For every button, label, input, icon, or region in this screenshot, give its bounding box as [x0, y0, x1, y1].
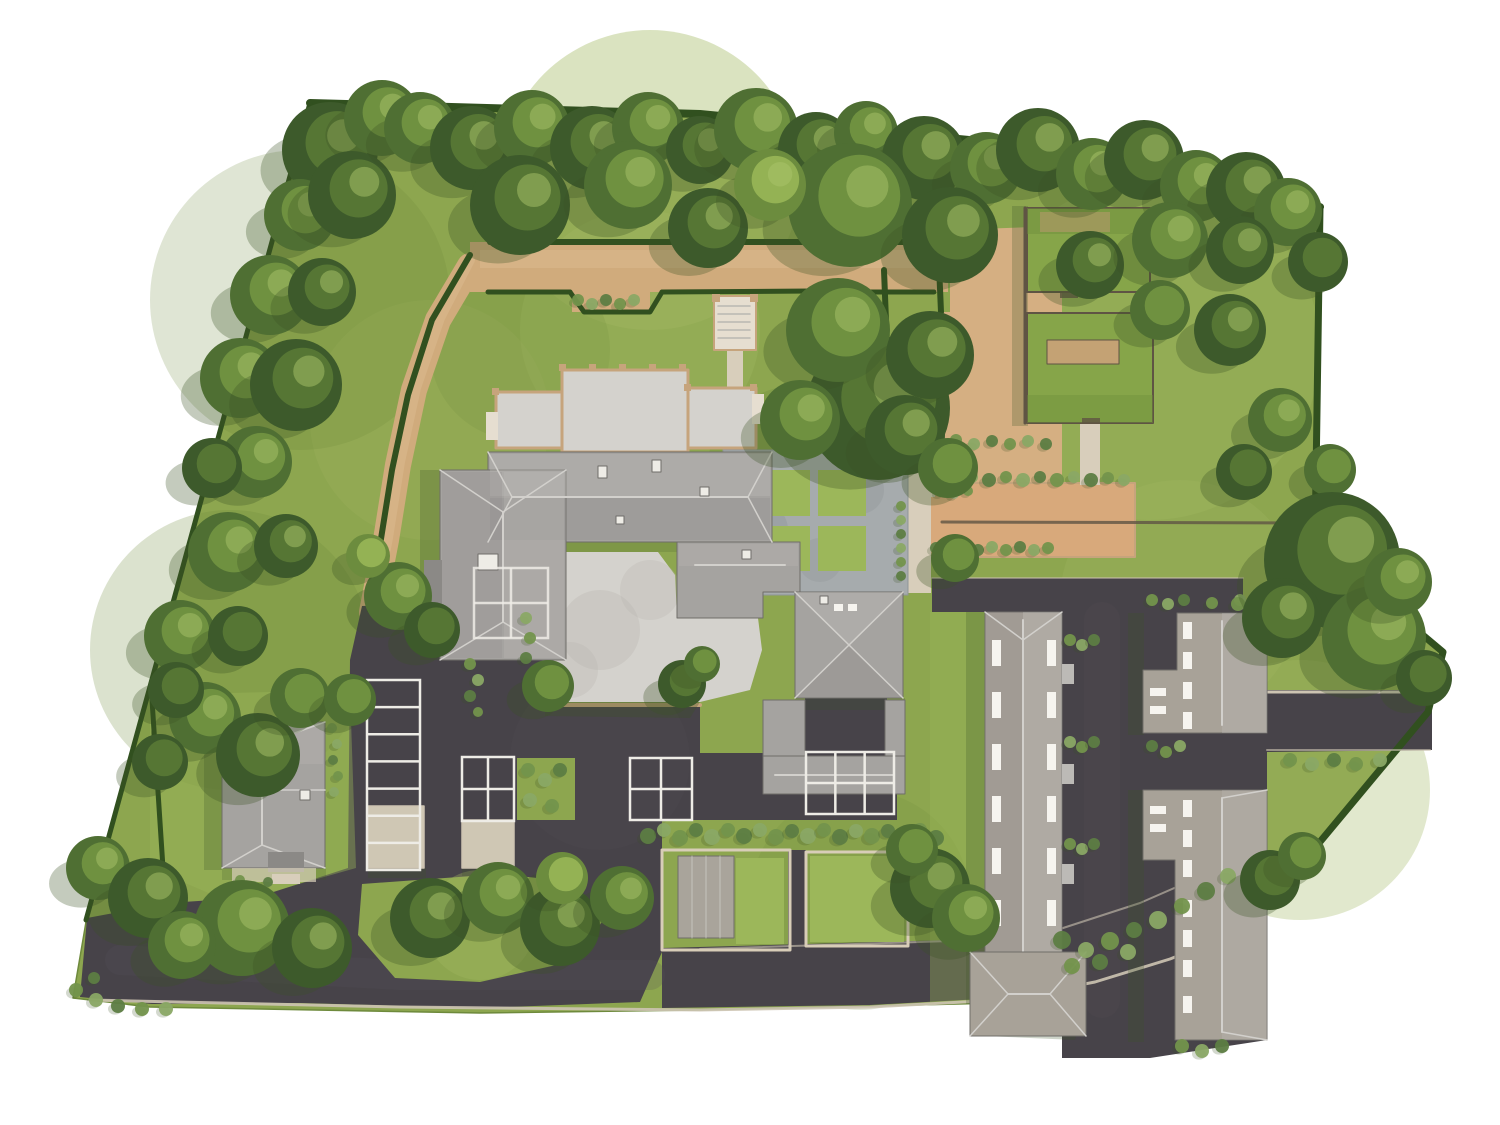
gravel-terraces-shape [679, 364, 686, 371]
shrub-canopy [328, 755, 338, 765]
shrub-canopy [545, 799, 559, 813]
rooflight [848, 604, 857, 611]
gravel-terraces-shape [620, 560, 680, 620]
shrub-canopy [1215, 1039, 1229, 1053]
tree-canopy-light [1290, 837, 1322, 869]
shrub-canopy [1042, 542, 1054, 554]
shrub-canopy [1088, 838, 1100, 850]
rooflight [1183, 800, 1192, 817]
manor-house-shape [504, 472, 564, 658]
gravel-terraces-shape [559, 364, 566, 371]
building-shadows-shape [1128, 790, 1144, 1042]
tree-highlight [798, 394, 825, 421]
shrub-canopy [1092, 954, 1108, 970]
tree-highlight [180, 923, 203, 946]
shrub-canopy [1016, 473, 1030, 487]
tree-canopy-light [418, 607, 455, 644]
tree-canopy-light [899, 829, 933, 863]
shrub-canopy [1146, 594, 1158, 606]
lawn-steps [714, 296, 756, 350]
rooflight [1183, 622, 1192, 639]
shrub-canopy [1118, 474, 1130, 486]
shrub-canopy [521, 763, 535, 777]
shrub-canopy [982, 473, 996, 487]
tree-highlight [310, 922, 337, 949]
north-terrace-west [496, 392, 562, 448]
shrub-canopy [1014, 541, 1026, 553]
shrub-canopy [1101, 932, 1119, 950]
parterre-lawn-se [818, 526, 866, 571]
shrub-canopy [640, 828, 656, 844]
rooflight [1183, 712, 1192, 729]
shrub-canopy [1206, 597, 1218, 609]
hedges-walls-shape [662, 291, 812, 292]
tree-highlight [1396, 560, 1419, 583]
shrub-canopy [1178, 594, 1190, 606]
shrub-canopy [572, 294, 584, 306]
tree-highlight [96, 848, 118, 870]
tree-highlight [293, 356, 324, 387]
tree-highlight [284, 526, 306, 548]
tree-highlight [396, 574, 419, 597]
shrub-canopy [1088, 634, 1100, 646]
tree-canopy-light [357, 538, 386, 567]
shrub-canopy [721, 823, 735, 837]
shrub-canopy [520, 652, 532, 664]
shrub-canopy [111, 999, 125, 1013]
tree-highlight [1328, 516, 1374, 562]
shrub-canopy [538, 773, 552, 787]
shrub-canopy [1174, 740, 1186, 752]
chimney [652, 460, 661, 472]
mews-buildings-shape [1062, 764, 1074, 784]
rooflight [1150, 688, 1166, 696]
tree-canopy-light [162, 667, 199, 704]
tree-canopy-light [933, 444, 973, 484]
shrub-canopy [1078, 942, 1094, 958]
shrub-canopy [896, 529, 906, 539]
shrub-canopy [1040, 438, 1052, 450]
shrub-canopy [464, 690, 476, 702]
tree-canopy-light [1145, 286, 1185, 326]
tree-highlight [921, 131, 950, 160]
tree-highlight [768, 162, 792, 186]
stone-paths-shape [712, 294, 720, 302]
tree-highlight [1278, 400, 1300, 422]
shrub-canopy [768, 829, 784, 845]
building-shadows-shape [1128, 613, 1144, 735]
shrub-canopy [1162, 598, 1174, 610]
shrub-canopy [1000, 544, 1012, 556]
carport-east [462, 820, 514, 868]
tree-highlight [1238, 228, 1261, 251]
shrub-canopy [704, 829, 720, 845]
shrub-canopy [553, 763, 567, 777]
gravel-terraces-shape [684, 384, 691, 391]
shrub-canopy [332, 739, 342, 749]
shrub-canopy [657, 823, 671, 837]
shrub-canopy [329, 787, 339, 797]
tree-highlight [1142, 134, 1169, 161]
shrub-canopy [785, 824, 799, 838]
shrub-canopy [1373, 753, 1387, 767]
chimney [598, 466, 607, 478]
rooflight [1047, 640, 1056, 666]
rooflight [992, 640, 1001, 666]
site-plan [0, 0, 1500, 1125]
gravel-terraces-shape [750, 384, 757, 391]
tree-highlight [835, 297, 870, 332]
manor-house-shape [679, 544, 798, 566]
shrub-canopy [1053, 931, 1071, 949]
shrub-canopy [1126, 922, 1142, 938]
shrub-canopy [1064, 958, 1080, 974]
tree-highlight [146, 872, 173, 899]
site-plan-svg [0, 0, 1500, 1125]
rooflight [992, 796, 1001, 822]
chimney [616, 516, 624, 524]
shrub-canopy [524, 632, 536, 644]
shrub-canopy [1149, 911, 1167, 929]
tree-highlight [496, 875, 520, 899]
shrub-canopy [986, 435, 998, 447]
tree-highlight [964, 896, 987, 919]
tree-highlight [1035, 123, 1064, 152]
tree-canopy-light [197, 444, 237, 484]
mews-buildings-shape [985, 612, 1023, 1004]
shrub-canopy [1064, 736, 1076, 748]
rooflight [1047, 796, 1056, 822]
rooflight [1047, 848, 1056, 874]
shrub-canopy [1064, 838, 1076, 850]
rooflight [1183, 652, 1192, 669]
shrub-canopy [736, 828, 752, 844]
shrub-canopy [135, 1002, 149, 1016]
walled-garden-buildings-shape [1047, 340, 1119, 364]
shrub-canopy [628, 294, 640, 306]
shrub-canopy [472, 674, 484, 686]
tree-highlight [625, 157, 655, 187]
rooflight [1183, 860, 1192, 877]
gravel-terraces-shape [492, 388, 499, 395]
tree-highlight [349, 167, 379, 197]
shrub-canopy [1327, 753, 1341, 767]
shrub-canopy [689, 823, 703, 837]
shrub-canopy [600, 294, 612, 306]
shrub-canopy [849, 824, 863, 838]
walled-garden-buildings-shape [1082, 418, 1100, 424]
tree-canopy-light [146, 739, 183, 776]
tree-highlight [753, 103, 782, 132]
tree-canopy-light [223, 612, 263, 652]
shrub-canopy [1000, 471, 1012, 483]
shrub-canopy [523, 793, 537, 807]
shrub-canopy [896, 571, 906, 581]
rooflight [1183, 960, 1192, 977]
shrub-canopy [1028, 544, 1040, 556]
chimney [820, 596, 828, 604]
tree-highlight [646, 105, 670, 129]
tree-highlight [864, 113, 886, 135]
rooflight [1047, 692, 1056, 718]
tree-highlight [530, 104, 556, 130]
shrub-canopy [896, 515, 906, 525]
shrub-canopy [800, 828, 816, 844]
shrub-canopy [896, 557, 906, 567]
tree-canopy-light [535, 665, 569, 699]
shrub-canopy [1022, 435, 1034, 447]
shrub-canopy [1004, 438, 1016, 450]
tree-canopy-light [943, 539, 975, 571]
mews-buildings-shape [1062, 864, 1074, 884]
shrub-canopy [1120, 944, 1136, 960]
chimney [300, 790, 310, 800]
rooflight [1183, 930, 1192, 947]
tree-highlight [620, 878, 642, 900]
chimney [700, 487, 709, 496]
north-terrace-centre [562, 370, 688, 452]
shrub-canopy [1175, 1039, 1189, 1053]
tree-highlight [1286, 190, 1309, 213]
chimney [742, 550, 751, 559]
shrub-canopy [896, 501, 906, 511]
rooflight [1150, 706, 1166, 714]
tree-canopy-light [1410, 655, 1447, 692]
rooflight [834, 604, 843, 611]
tree-canopy-light [693, 649, 717, 673]
shrub-canopy [69, 983, 83, 997]
shrub-canopy [1084, 473, 1098, 487]
rooflight [1150, 806, 1166, 814]
tree-highlight [239, 897, 272, 930]
tree-highlight [1280, 592, 1307, 619]
shrub-canopy [986, 541, 998, 553]
shrub-canopy [88, 972, 100, 984]
tree-highlight [846, 165, 888, 207]
shrub-canopy [1068, 471, 1080, 483]
shrub-canopy [159, 1002, 173, 1016]
mews-buildings-shape [1062, 664, 1074, 684]
shrub-canopy [263, 877, 273, 887]
gravel-terraces-shape [649, 364, 656, 371]
stone-paths-shape [750, 294, 758, 302]
shrub-canopy [586, 298, 598, 310]
rooflight [1183, 996, 1192, 1013]
shrub-canopy [1050, 473, 1064, 487]
shrub-canopy [1197, 882, 1215, 900]
tree-highlight [947, 204, 980, 237]
tree-highlight [178, 613, 202, 637]
tree-highlight [927, 327, 957, 357]
rooflight [992, 744, 1001, 770]
tree-highlight [203, 695, 227, 719]
gravel-terraces-shape [589, 364, 596, 371]
tree-highlight [1088, 243, 1111, 266]
rooflight [1150, 824, 1166, 832]
tree-canopy-light [1317, 449, 1351, 483]
shrub-canopy [1349, 757, 1363, 771]
gravel-terraces-shape [619, 364, 626, 371]
rooflight [992, 692, 1001, 718]
rooflight [1047, 744, 1056, 770]
shrub-canopy [1064, 634, 1076, 646]
tree-highlight [517, 173, 551, 207]
shrub-canopy [1305, 757, 1319, 771]
shrub-canopy [614, 298, 626, 310]
shrub-canopy [89, 993, 103, 1007]
rooflight [1183, 682, 1192, 699]
gravel-terraces-shape [486, 412, 498, 440]
tree-canopy-light [1303, 238, 1343, 278]
plot-west-lawn [736, 858, 784, 944]
tree-highlight [320, 270, 343, 293]
tree-highlight [1228, 307, 1252, 331]
shrub-canopy [896, 543, 906, 553]
shrub-canopy [864, 828, 880, 844]
rooflight [992, 848, 1001, 874]
shrub-canopy [1146, 740, 1158, 752]
tree-canopy-light [1230, 449, 1267, 486]
shrub-canopy [473, 707, 483, 717]
tree-highlight [903, 409, 930, 436]
shrub-canopy [1160, 746, 1172, 758]
tree-highlight [1168, 216, 1194, 242]
rooflight [1047, 900, 1056, 926]
shrub-canopy [753, 823, 767, 837]
shrub-canopy [520, 612, 532, 624]
tree-canopy-light [549, 857, 583, 891]
shrub-canopy [1283, 753, 1297, 767]
tree-canopy-light [337, 679, 371, 713]
shrub-canopy [1174, 898, 1190, 914]
shrub-canopy [333, 771, 343, 781]
shrub-canopy [832, 829, 848, 845]
shrub-canopy [1102, 472, 1114, 484]
tree-highlight [254, 439, 278, 463]
shrub-canopy [1034, 471, 1046, 483]
shrub-canopy [1088, 736, 1100, 748]
shrub-canopy [817, 823, 831, 837]
shrub-canopy [1195, 1044, 1209, 1058]
rooflight [1183, 830, 1192, 847]
walled-garden-south-wall [942, 522, 1308, 523]
shrub-canopy [464, 658, 476, 670]
shrub-canopy [672, 830, 688, 846]
